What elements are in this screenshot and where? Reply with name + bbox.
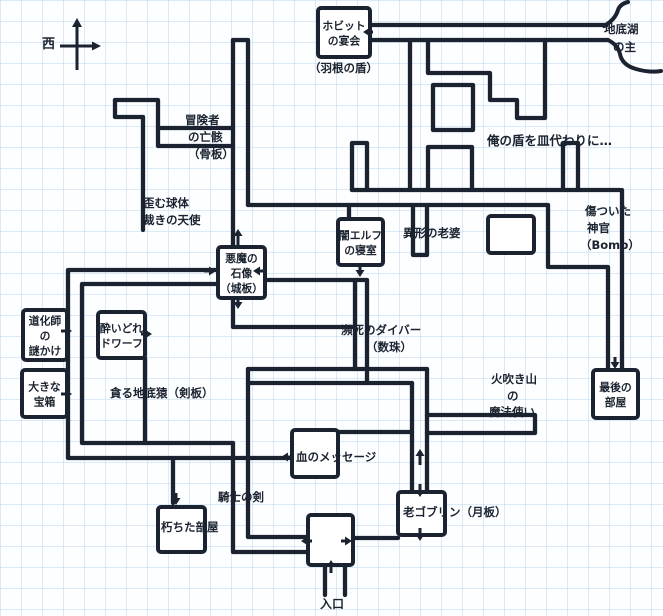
map-label: の主 [613,40,636,54]
hobbit-banquet-room-label: ホビット [322,19,365,33]
jester-riddle-room-label: の [40,330,51,343]
compass-west-label: 西 [42,37,55,52]
big-chest-room [22,370,67,417]
map-label: 異形の老婆 [403,226,461,240]
map-label: の [507,389,519,403]
dark-elf-bedroom-label: 闇エルフ [339,229,382,242]
dungeon-map-page: ホビットの宴会悪魔の石像（城板）闇エルフの寝室道化師の謎かけ大きな宝箱酔いどれド… [0,0,663,616]
demon-statue-room-label: 悪魔の [225,251,258,265]
map-label: 裁きの天使 [143,213,201,227]
map-label: 地底湖 [604,22,639,36]
map-label: （羽根の盾） [309,61,378,75]
map-label: 火吹き山 [491,372,537,386]
map-label: 朽ちた部屋 [161,520,219,534]
map-label: （骨板） [188,147,234,161]
map-label: 入口 [320,597,344,611]
last-room [593,370,638,418]
dark-elf-bedroom-label: の寝室 [344,243,377,257]
map-label: 血のメッセージ [296,450,377,464]
jester-riddle-room-label: 謎かけ [29,344,62,358]
last-room-label: 部屋 [605,395,627,409]
drunken-dwarf-room-label: ドワーフ [100,337,143,350]
map-label: 冒険者 [185,113,220,127]
map-label: 騎士の剣 [218,490,264,504]
map-label: 貪る地底猿（剣板） [109,386,214,400]
map-label: 魔法使い [489,405,535,419]
map-label: （数珠） [366,340,412,354]
map-label: 瀕死のダイバー [341,323,421,337]
dungeon-map: ホビットの宴会悪魔の石像（城板）闇エルフの寝室道化師の謎かけ大きな宝箱酔いどれド… [0,0,663,616]
unlabeled-room [488,216,534,253]
hobbit-banquet-room-label: の宴会 [328,34,361,48]
last-room-label: 最後の [599,380,632,394]
drunken-dwarf-room [98,312,145,358]
map-label: 神官 [587,221,610,235]
demon-statue-room-label: （城板） [220,281,263,295]
hobbit-banquet-room [318,8,370,57]
map-label: （Bomb） [580,238,640,252]
demon-statue-room-label: 石像 [230,266,253,280]
big-chest-room-label: 宝箱 [34,395,56,409]
big-chest-room-label: 大きな [28,380,61,394]
dark-elf-bedroom [338,219,383,265]
map-label: 老ゴブリン（月板） [402,505,507,519]
drunken-dwarf-room-label: 酔いどれ [100,321,143,335]
map-label: 傷ついた [584,204,631,218]
jester-riddle-room-label: 道化師 [29,314,62,328]
map-label: 俺の盾を皿代わりに… [486,133,612,148]
map-label: 歪む球体 [143,196,189,210]
map-label: の亡骸 [188,130,223,144]
